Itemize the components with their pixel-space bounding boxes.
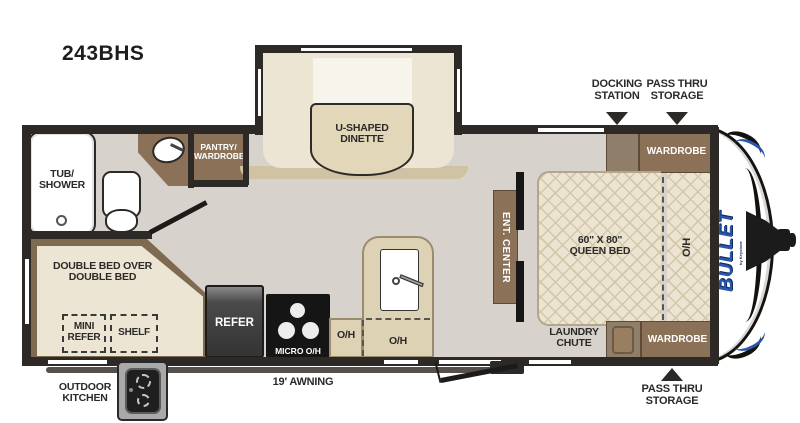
wall-pantry-right [243, 130, 249, 185]
kitchen-faucet-icon [392, 277, 400, 285]
outdoor-kitchen-label: OUTDOORKITCHEN [55, 382, 115, 405]
bed-head-storage: O/H [667, 173, 714, 323]
arrow-down-icon [606, 112, 628, 125]
window [24, 258, 30, 325]
mini-refer-label: MINIREFER [64, 322, 104, 344]
wall-under-pantry [188, 180, 248, 187]
ent-center-label: ENT. CENTER [500, 197, 511, 299]
dinette-table: U-SHAPEDDINETTE [310, 103, 414, 176]
arrow-up-icon [661, 368, 683, 381]
dinette-label: U-SHAPEDDINETTE [312, 123, 412, 146]
window [300, 47, 413, 52]
arrow-down-icon [666, 112, 688, 125]
mini-refer-box: MINIREFER [62, 314, 106, 353]
bed-divider [662, 177, 664, 320]
wardrobe-bottom-label: WARDROBE [642, 334, 713, 345]
stove: MICRO O/H [266, 294, 330, 358]
outdoor-kitchen-unit [117, 361, 168, 421]
wardrobe-bottom: WARDROBE [641, 321, 714, 359]
queen-bed-label: 60" X 80"QUEEN BED [539, 235, 661, 258]
tub-shower-label: TUB/SHOWER [30, 169, 94, 192]
stove-burner [278, 322, 295, 339]
hitch-coupler [788, 233, 796, 247]
tub-shower: TUB/SHOWER [28, 131, 96, 236]
pantry-wardrobe: PANTRY/WARDROBE [194, 131, 243, 181]
wall-front [710, 127, 719, 364]
window [528, 359, 572, 365]
bunk-label: DOUBLE BED OVERDOUBLE BED [45, 261, 160, 284]
toilet-bowl [105, 209, 138, 233]
wall-bath-bottom [22, 231, 152, 239]
micro-oh-label: MICRO O/H [266, 346, 330, 356]
oh-1-label: O/H [331, 330, 361, 341]
nightstand-door [612, 326, 634, 354]
tub-drain [56, 215, 67, 226]
outdoor-burner [137, 394, 150, 407]
tv [516, 172, 524, 230]
awning-label: 19' AWNING [262, 377, 344, 389]
laundry-chute-label: LAUNDRYCHUTE [544, 327, 604, 350]
outdoor-burner [136, 374, 151, 389]
oh-2-label: O/H [364, 336, 432, 347]
pantry-label: PANTRY/WARDROBE [194, 143, 243, 162]
outdoor-knob [129, 388, 133, 392]
docking-station-label: DOCKINGSTATION [585, 79, 649, 103]
wardrobe-top: WARDROBE [639, 131, 714, 173]
wardrobe-top-label: WARDROBE [640, 146, 713, 157]
wall-top-left [22, 125, 262, 134]
window [383, 359, 419, 365]
wall-rear [22, 125, 31, 366]
outdoor-cooktop [125, 368, 161, 414]
window [47, 359, 108, 365]
window [456, 68, 461, 113]
shelf-label: SHELF [112, 328, 156, 339]
nightstand-cabinet [606, 321, 641, 359]
stove-burner [290, 303, 305, 318]
counter-divider [362, 320, 364, 356]
refer-label: REFER [207, 317, 262, 329]
tv [516, 261, 524, 322]
floorplan-canvas: 243BHS BULLET by Keystone TUB/SHOWER PAN… [0, 0, 800, 423]
oh-cabinet-1: O/H [329, 318, 363, 358]
stove-burner [302, 322, 319, 339]
pass-thru-top-label: PASS THRUSTORAGE [645, 79, 709, 103]
docking-station-cabinet [606, 131, 639, 173]
page-title: 243BHS [62, 42, 144, 66]
dinette-walkspace [313, 58, 412, 105]
window [537, 127, 605, 133]
window [257, 68, 262, 117]
shelf-box: SHELF [110, 314, 158, 353]
queen-bed: 60" X 80"QUEEN BED [537, 171, 661, 326]
brand-sub-logo: by Keystone [738, 228, 745, 278]
ent-center-cabinet: ENT. CENTER [493, 190, 518, 304]
counter-divider [366, 318, 430, 320]
sink-peninsula: O/H [362, 236, 434, 358]
bed-oh-label: O/H [682, 211, 694, 285]
awning-rail [46, 367, 512, 373]
pass-thru-bottom-label: PASS THRUSTORAGE [640, 384, 704, 408]
refrigerator: REFER [205, 285, 264, 358]
